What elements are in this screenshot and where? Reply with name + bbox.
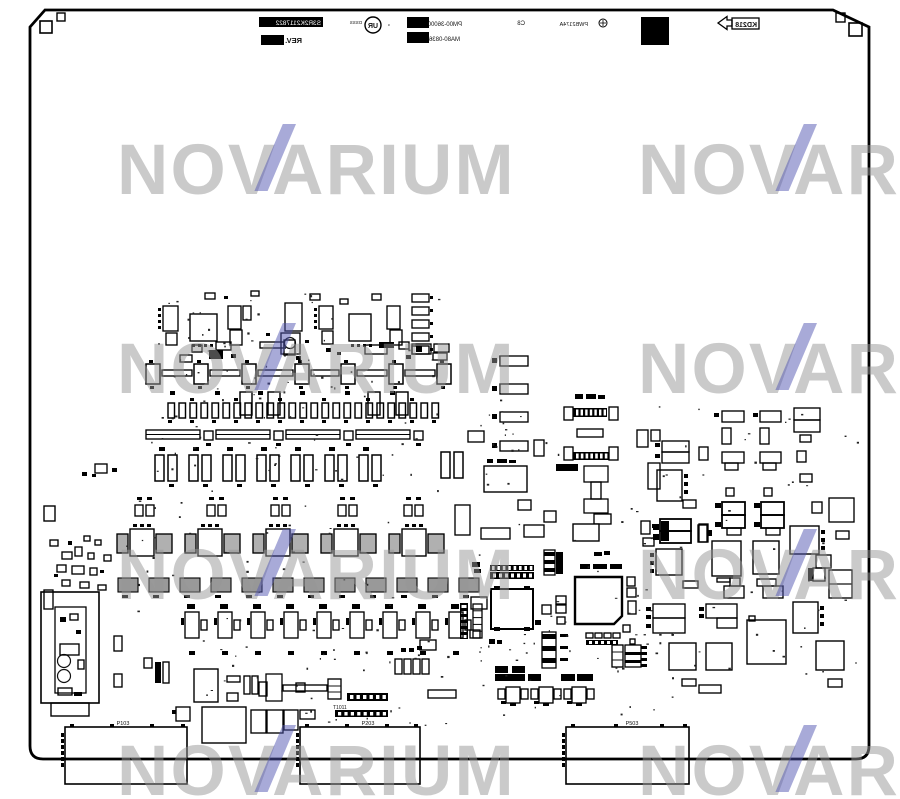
svg-text:NOVARIUM: NOVARIUM bbox=[638, 732, 900, 799]
svg-text:S3R2K2117822: S3R2K2117822 bbox=[275, 20, 321, 27]
svg-text:NOVARIUM: NOVARIUM bbox=[638, 330, 900, 409]
svg-text:DSSS: DSSS bbox=[350, 20, 362, 25]
svg-text:NOVARIUM: NOVARIUM bbox=[117, 330, 516, 409]
svg-text:c: c bbox=[388, 22, 390, 27]
svg-text:T1011: T1011 bbox=[333, 705, 347, 711]
svg-text:NOVARIUM: NOVARIUM bbox=[117, 536, 516, 615]
svg-text:PWB2174A: PWB2174A bbox=[559, 22, 588, 28]
svg-text:NOVARIUM: NOVARIUM bbox=[638, 131, 900, 210]
svg-text:NOVARIUM: NOVARIUM bbox=[117, 732, 516, 799]
svg-text:REV.: REV. bbox=[285, 36, 302, 45]
svg-text:KD218: KD218 bbox=[735, 22, 757, 29]
svg-text:MA80-0836: MA80-0836 bbox=[428, 37, 460, 43]
svg-text:UR: UR bbox=[368, 23, 378, 30]
svg-text:P103: P103 bbox=[117, 721, 130, 727]
svg-text:P503: P503 bbox=[626, 721, 639, 727]
svg-text:C8: C8 bbox=[517, 21, 525, 27]
svg-text:PM00-36000: PM00-36000 bbox=[427, 22, 462, 28]
svg-text:P203: P203 bbox=[362, 721, 375, 727]
svg-text:NOVARIUM: NOVARIUM bbox=[117, 131, 516, 210]
svg-text:NOVARIUM: NOVARIUM bbox=[638, 536, 900, 615]
